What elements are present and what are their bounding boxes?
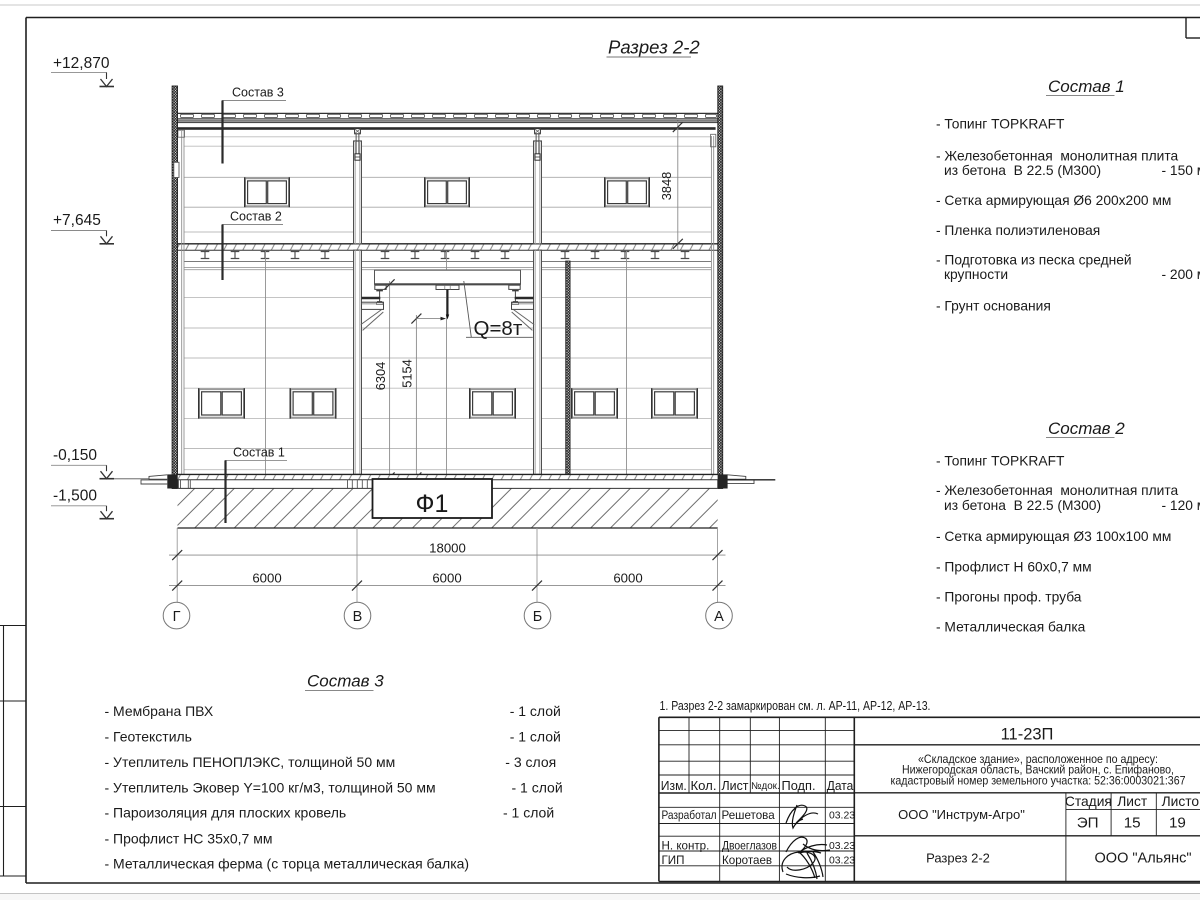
svg-text:+7,645: +7,645 — [53, 212, 101, 229]
svg-text:ООО "Инструм-Агро": ООО "Инструм-Агро" — [898, 807, 1025, 822]
svg-text:Состав 3: Состав 3 — [232, 86, 284, 100]
svg-text:18000: 18000 — [429, 540, 466, 555]
svg-text:-0,150: -0,150 — [53, 447, 97, 464]
svg-text:Состав 2: Состав 2 — [1048, 419, 1125, 438]
svg-text:из бетона В 22.5 (М300): из бетона В 22.5 (М300) — [944, 498, 1101, 513]
svg-text:Разрез 2-2: Разрез 2-2 — [608, 37, 700, 58]
svg-text:03.23: 03.23 — [829, 856, 855, 867]
svg-text:6000: 6000 — [613, 570, 642, 585]
svg-text:- Металлическая ферма (с торца: - Металлическая ферма (с торца металличе… — [105, 856, 470, 872]
svg-text:- Топинг TOPKRAFT: - Топинг TOPKRAFT — [936, 453, 1065, 468]
svg-text:- Железобетонная монолитная п: - Железобетонная монолитная плита — [936, 148, 1179, 163]
svg-text:Разработал: Разработал — [662, 809, 717, 822]
svg-text:Листов: Листов — [1162, 794, 1200, 809]
svg-text:Подп.: Подп. — [782, 778, 816, 793]
svg-text:Г: Г — [173, 609, 181, 625]
svg-text:6000: 6000 — [252, 570, 281, 585]
svg-text:11-23П: 11-23П — [1001, 726, 1054, 744]
svg-text:Разрез 2-2: Разрез 2-2 — [926, 851, 990, 866]
svg-text:Лист: Лист — [1117, 794, 1148, 809]
svg-text:- Подготовка из песка средней: - Подготовка из песка средней — [936, 252, 1132, 267]
svg-text:Решетова: Решетова — [722, 809, 776, 822]
svg-text:Ф1: Ф1 — [416, 490, 449, 518]
svg-text:-1,500: -1,500 — [53, 488, 97, 505]
svg-text:Состав 1: Состав 1 — [1048, 77, 1125, 96]
svg-text:15: 15 — [1124, 815, 1141, 832]
svg-text:из бетона В 22.5 (М300): из бетона В 22.5 (М300) — [944, 163, 1101, 178]
svg-text:- Топинг TOPKRAFT: - Топинг TOPKRAFT — [936, 116, 1065, 131]
svg-text:5154: 5154 — [399, 359, 414, 387]
svg-text:- Утеплитель ПЕНОПЛЭКС, толщин: - Утеплитель ПЕНОПЛЭКС, толщиной 50 мм — [105, 754, 396, 770]
svg-text:- Профлист Н 60х0,7 мм: - Профлист Н 60х0,7 мм — [936, 560, 1092, 575]
svg-text:- Сетка армирующая Ø6 200x200: - Сетка армирующая Ø6 200x200 мм — [936, 193, 1171, 208]
svg-text:03.23: 03.23 — [829, 811, 855, 822]
svg-text:- Пленка полиэтиленовая: - Пленка полиэтиленовая — [936, 223, 1100, 238]
svg-text:Коротаев: Коротаев — [722, 854, 772, 867]
svg-text:- Утеплитель Эковер Y=100 кг/м: - Утеплитель Эковер Y=100 кг/м3, толщино… — [105, 780, 436, 796]
svg-text:- Геотекстиль: - Геотекстиль — [105, 729, 192, 745]
svg-text:- Прогоны проф. труба: - Прогоны проф. труба — [936, 590, 1082, 605]
svg-text:- Профлист НС 35х0,7 мм: - Профлист НС 35х0,7 мм — [105, 830, 273, 846]
svg-text:Состав 1: Состав 1 — [233, 446, 285, 460]
svg-text:Изм.: Изм. — [661, 778, 687, 793]
svg-text:- Пароизоляция для плоских кро: - Пароизоляция для плоских кровель — [105, 805, 347, 821]
svg-text:Дата: Дата — [827, 778, 854, 793]
svg-text:- 1 слой: - 1 слой — [503, 805, 554, 821]
svg-text:кадастровый номер земельного у: кадастровый номер земельного участка: 52… — [891, 774, 1186, 788]
svg-text:Н. контр.: Н. контр. — [662, 840, 710, 853]
svg-text:- 1 слой: - 1 слой — [510, 729, 561, 745]
svg-text:ГИП: ГИП — [662, 854, 685, 867]
svg-text:6304: 6304 — [373, 362, 388, 390]
svg-text:- Железобетонная монолитная п: - Железобетонная монолитная плита — [936, 483, 1179, 498]
svg-text:Состав 2: Состав 2 — [230, 210, 282, 224]
svg-text:- 200 мм: - 200 мм — [1162, 267, 1200, 282]
svg-text:Стадия: Стадия — [1065, 794, 1112, 809]
svg-text:- Сетка армирующая Ø3 100x100: - Сетка армирующая Ø3 100x100 мм — [936, 529, 1171, 544]
svg-text:ООО "Альянс": ООО "Альянс" — [1095, 851, 1192, 867]
svg-text:ЭП: ЭП — [1077, 815, 1099, 832]
svg-text:А: А — [714, 609, 724, 625]
svg-text:Кол.: Кол. — [691, 778, 717, 793]
svg-text:+12,870: +12,870 — [53, 55, 110, 72]
svg-text:1. Разрез 2-2 замаркирован см.: 1. Разрез 2-2 замаркирован см. л. АР-11,… — [660, 698, 931, 713]
svg-text:крупности: крупности — [944, 267, 1008, 282]
svg-text:- Грунт основания: - Грунт основания — [936, 299, 1051, 314]
svg-text:- 1 слой: - 1 слой — [510, 703, 561, 719]
svg-text:Двоеглазов: Двоеглазов — [722, 840, 777, 853]
svg-text:- 120 мм: - 120 мм — [1162, 498, 1200, 513]
svg-text:03.23: 03.23 — [829, 841, 855, 852]
svg-text:3848: 3848 — [659, 172, 674, 200]
svg-text:19: 19 — [1169, 815, 1186, 832]
svg-text:Б: Б — [533, 609, 543, 625]
svg-text:- Мембрана ПВХ: - Мембрана ПВХ — [105, 703, 214, 719]
svg-text:- 150 мм: - 150 мм — [1162, 163, 1200, 178]
svg-text:№док.: №док. — [751, 781, 780, 792]
svg-text:- Металлическая балка: - Металлическая балка — [936, 619, 1086, 634]
svg-text:Состав 3: Состав 3 — [307, 672, 384, 691]
svg-text:Лист: Лист — [722, 778, 749, 793]
svg-text:Q=8т: Q=8т — [474, 317, 523, 340]
svg-text:В: В — [353, 609, 363, 625]
svg-text:- 1 слой: - 1 слой — [512, 780, 563, 796]
svg-text:6000: 6000 — [432, 570, 461, 585]
svg-text:- 3 слоя: - 3 слоя — [505, 754, 556, 770]
